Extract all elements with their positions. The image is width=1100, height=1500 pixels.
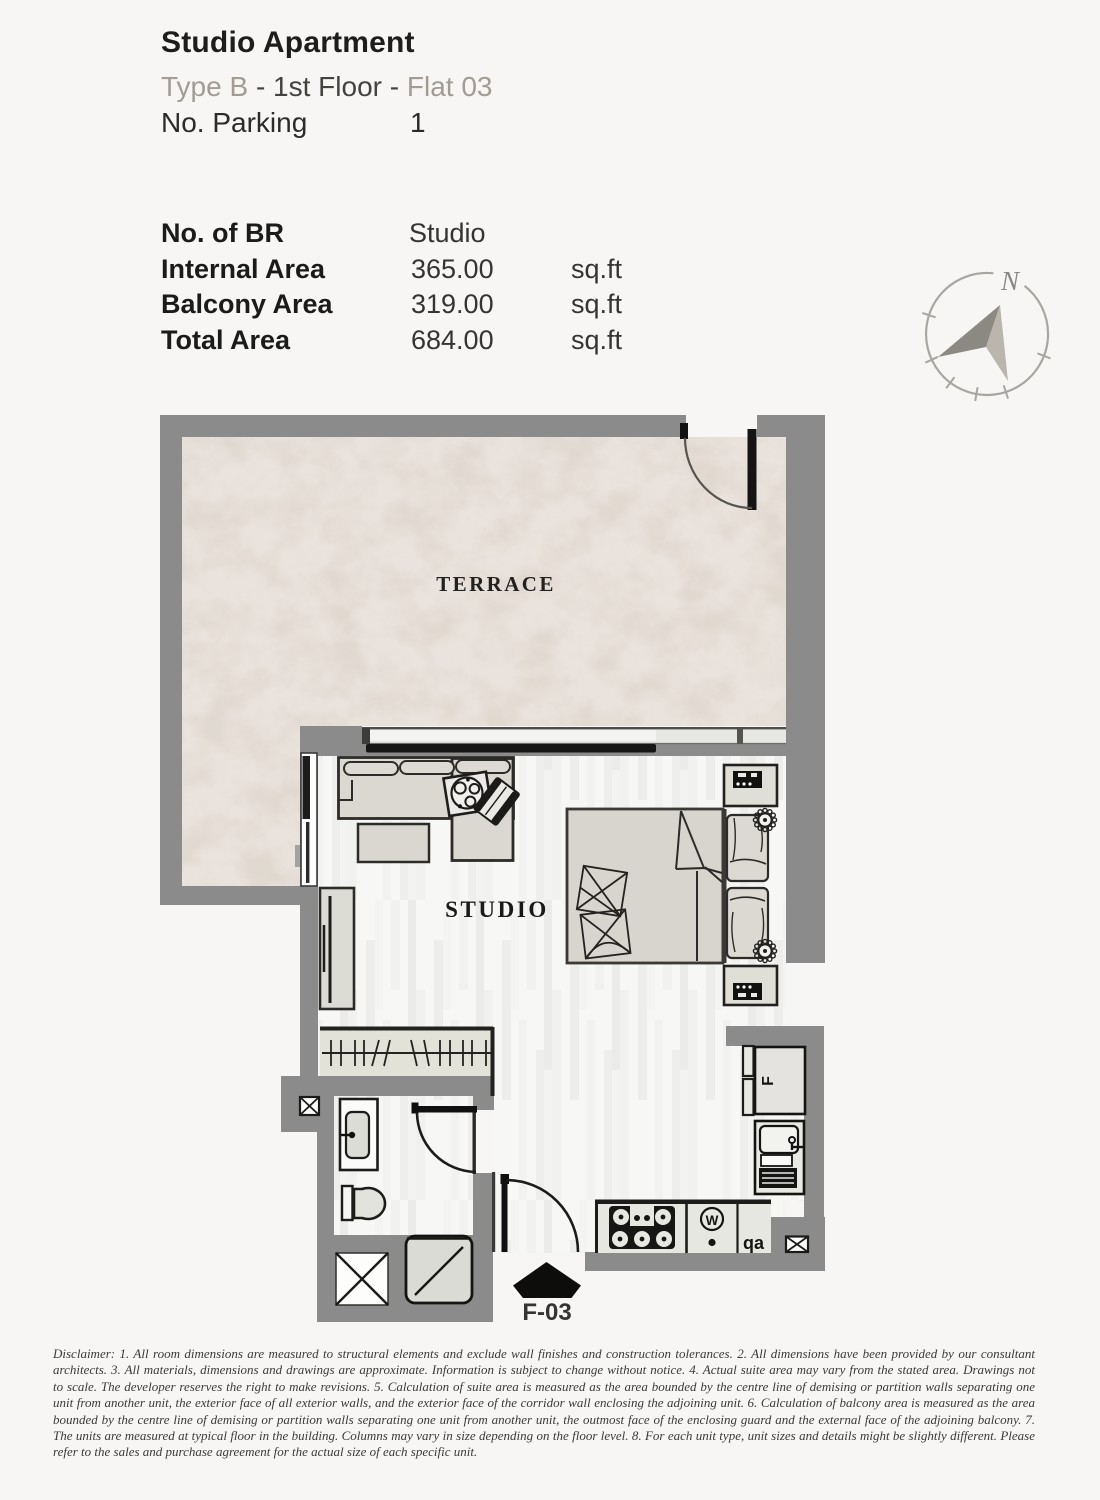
svg-text:TERRACE: TERRACE (436, 572, 555, 596)
svg-text:qa: qa (743, 1233, 765, 1253)
svg-text:F-03: F-03 (522, 1299, 571, 1326)
svg-text:STUDIO: STUDIO (445, 897, 549, 922)
svg-text:N: N (1000, 266, 1021, 296)
svg-text:F: F (760, 1076, 777, 1086)
svg-text:W: W (706, 1213, 719, 1228)
